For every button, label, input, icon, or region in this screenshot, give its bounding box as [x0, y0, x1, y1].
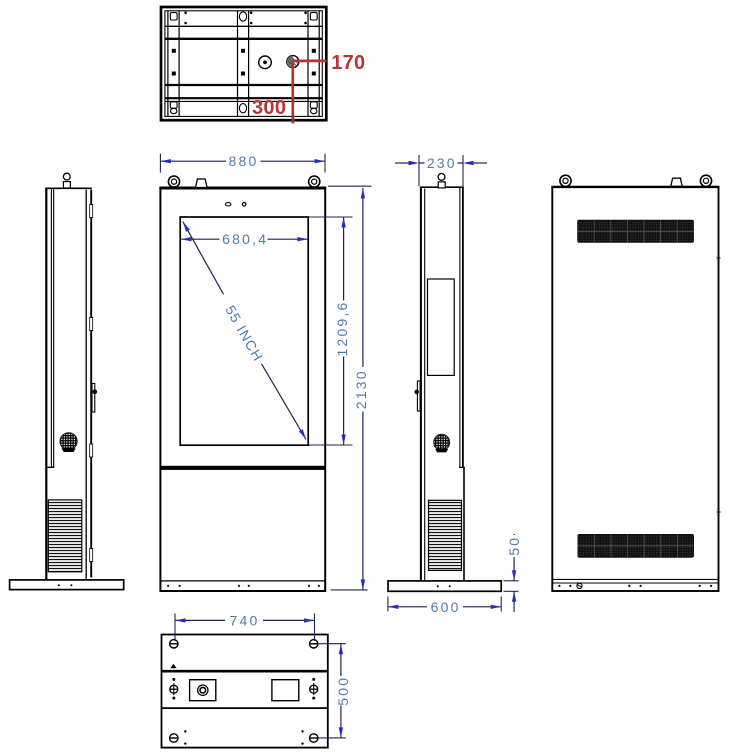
svg-text:880: 880: [229, 153, 259, 169]
svg-text:680,4: 680,4: [222, 231, 268, 247]
svg-text:1209,6: 1209,6: [334, 300, 350, 356]
svg-text:230: 230: [427, 155, 457, 171]
svg-text:740: 740: [230, 612, 260, 628]
svg-text:300: 300: [252, 97, 286, 119]
svg-text:170: 170: [331, 52, 365, 74]
svg-text:500: 500: [335, 676, 351, 706]
svg-text:50: 50: [506, 536, 522, 556]
svg-text:2130: 2130: [353, 369, 369, 409]
svg-text:600: 600: [431, 599, 461, 615]
